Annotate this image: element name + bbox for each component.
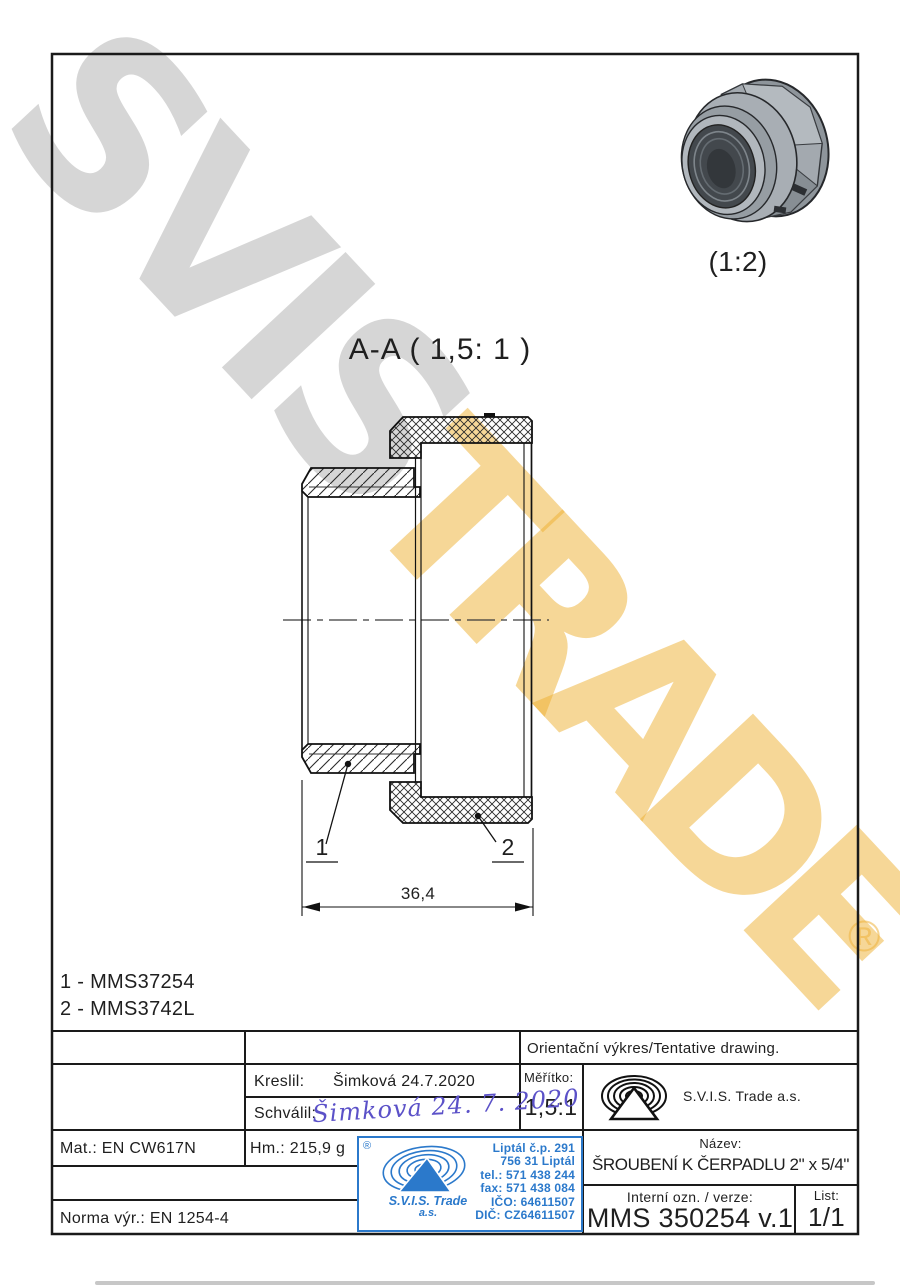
company-name: S.V.I.S. Trade a.s. (683, 1088, 801, 1104)
svis-logo (602, 1076, 666, 1119)
weight-field: Hm.: 215,9 g (250, 1140, 345, 1158)
standard-field: Norma výr.: EN 1254-4 (60, 1210, 229, 1228)
section-title: A-A ( 1,5: 1 ) (330, 333, 550, 367)
part1-section-bottom (302, 744, 420, 773)
part-callout-2: 2 (490, 834, 526, 861)
drawing-frame (52, 54, 858, 1234)
stamp-address-line: fax: 571 438 084 (475, 1182, 575, 1195)
company-stamp: ® S.V.I.S. Trade a.s. Liptál č.p. 291 75… (357, 1136, 583, 1232)
internal-id-value: MMS 350254 v.1 (585, 1203, 795, 1234)
stamp-address-line: tel.: 571 438 244 (475, 1169, 575, 1182)
stamp-company-line2: a.s. (373, 1207, 483, 1219)
part-callout-1: 1 (304, 834, 340, 861)
name-label: Název: (585, 1136, 856, 1151)
scan-edge-artifact (95, 1281, 875, 1285)
orientation-note: Orientační výkres/Tentative drawing. (527, 1040, 780, 1057)
drawing-sheet: SVIS TRADE ® (0, 0, 900, 1288)
stamp-address-line: Liptál č.p. 291 (475, 1142, 575, 1155)
part1-section-top (302, 468, 420, 497)
part2-section-top (390, 417, 532, 458)
drawn-value: Šimková 24.7.2020 (333, 1073, 475, 1091)
stamp-address-line: 756 31 Liptál (475, 1155, 575, 1168)
drawn-label: Kreslil: (254, 1073, 304, 1091)
sheet-label: List: (797, 1188, 856, 1203)
part2-section-bottom (390, 782, 532, 823)
part-3d-render (666, 67, 843, 237)
stamp-company-line1: S.V.I.S. Trade (373, 1194, 483, 1208)
stamp-address: Liptál č.p. 291 756 31 Liptál tel.: 571 … (475, 1142, 575, 1222)
sheet-value: 1/1 (797, 1202, 856, 1233)
scale-field-label: Měřítko: (524, 1070, 573, 1085)
parts-list-item-1: 1 - MMS37254 (60, 971, 195, 994)
material-field: Mat.: EN CW617N (60, 1140, 196, 1158)
dimension-text: 36,4 (368, 884, 468, 904)
parts-list-item-2: 2 - MMS3742L (60, 998, 195, 1021)
stamp-logo (369, 1142, 479, 1196)
name-value: ŠROUBENÍ K ČERPADLU 2" x 5/4" (579, 1155, 862, 1175)
stamp-address-line: DIČ: CZ64611507 (475, 1209, 575, 1222)
scale-label-3d: (1:2) (688, 246, 788, 278)
approved-label: Schválil: (254, 1105, 316, 1123)
